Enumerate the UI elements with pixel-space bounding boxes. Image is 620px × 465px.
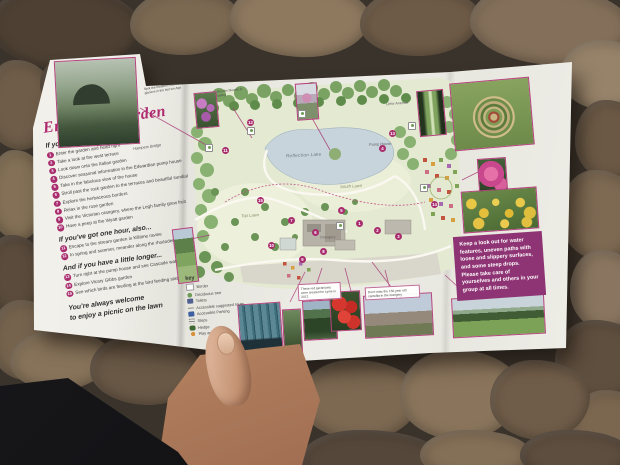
map-marker: 4: [379, 145, 386, 152]
border-swatch-icon: [186, 283, 195, 291]
map-marker: 10: [268, 242, 275, 249]
daffodils-photo: [461, 186, 540, 233]
map-marker: 9: [299, 256, 306, 263]
toilets-icon: [187, 299, 193, 305]
photo-scene: Enjoy the Garden If you've got 30 minute…: [0, 0, 620, 465]
item-number-badge: 9: [56, 216, 63, 223]
steps-icon: [189, 318, 195, 324]
lime-avenue-photo: [416, 89, 447, 137]
facility-icon: [408, 122, 416, 130]
map-marker: 8: [320, 248, 327, 255]
map-marker: 13: [389, 130, 396, 137]
hedge-icon: [189, 325, 195, 331]
map-marker: 3: [395, 233, 402, 240]
item-number-badge: 13: [64, 274, 71, 281]
item-number-badge: 8: [54, 208, 61, 215]
facility-icon: [205, 144, 213, 152]
item-number-badge: 5: [51, 184, 58, 191]
map-marker: 11: [222, 147, 229, 154]
map-marker: 2: [374, 227, 381, 234]
item-number-badge: 2: [48, 159, 55, 166]
map-marker: 5: [338, 207, 345, 214]
item-number-badge: 14: [65, 282, 72, 289]
map-marker: 15: [257, 197, 264, 204]
item-number-badge: 10: [57, 224, 64, 231]
spring-blooms-photo: [193, 91, 219, 129]
map-marker: 1: [356, 220, 363, 227]
parkland-lawn-photo: [451, 294, 546, 339]
item-number-badge: 1: [47, 151, 54, 158]
geraniums-caption: These red geraniums were created for Lym…: [298, 282, 342, 302]
facility-icon: [247, 127, 255, 135]
item-number-badge: 7: [53, 200, 60, 207]
item-number-badge: 4: [50, 176, 57, 183]
tree-icon: [186, 292, 192, 298]
map-marker: 14: [431, 201, 438, 208]
facility-icon: [336, 222, 344, 230]
item-number-badge: 11: [60, 245, 67, 252]
item-number-badge: 12: [61, 253, 68, 260]
item-number-badge: 15: [66, 290, 73, 297]
map-marker: 12: [247, 119, 254, 126]
parterre-aerial-photo: [449, 77, 535, 152]
bridge-arch: [72, 83, 110, 105]
play-area-icon: [190, 331, 196, 337]
map-marker: 7: [288, 217, 295, 224]
map-marker: 6: [312, 229, 319, 236]
item-number-badge: 3: [49, 167, 56, 174]
item-number-badge: 6: [52, 192, 59, 199]
facility-icon: [298, 110, 306, 118]
parking-icon: [188, 312, 194, 318]
bridge-boulders-photo: [54, 57, 140, 148]
dashed-route-icon: [188, 307, 194, 309]
facility-icon: [420, 184, 428, 192]
safety-notice: Keep a look out for water features, unev…: [453, 231, 546, 301]
